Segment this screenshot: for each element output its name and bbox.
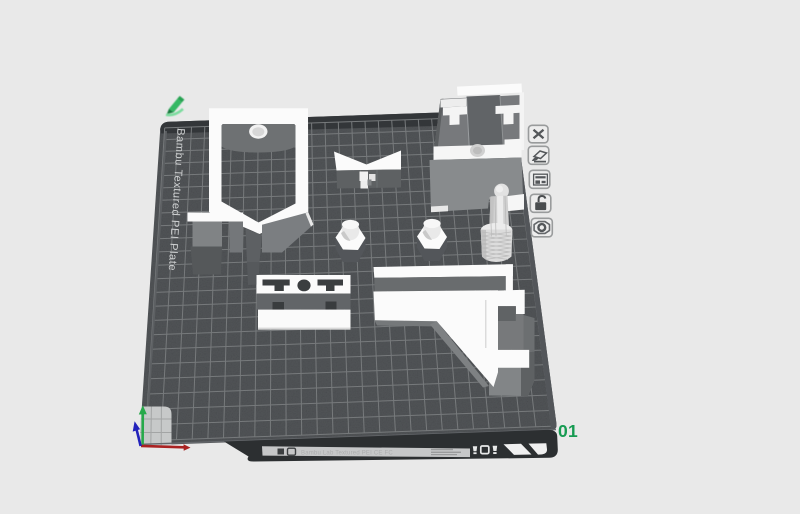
svg-text:Bambu Lab Textured PEI CE FC: Bambu Lab Textured PEI CE FC — [301, 451, 393, 457]
svg-text:01: 01 — [558, 421, 578, 441]
